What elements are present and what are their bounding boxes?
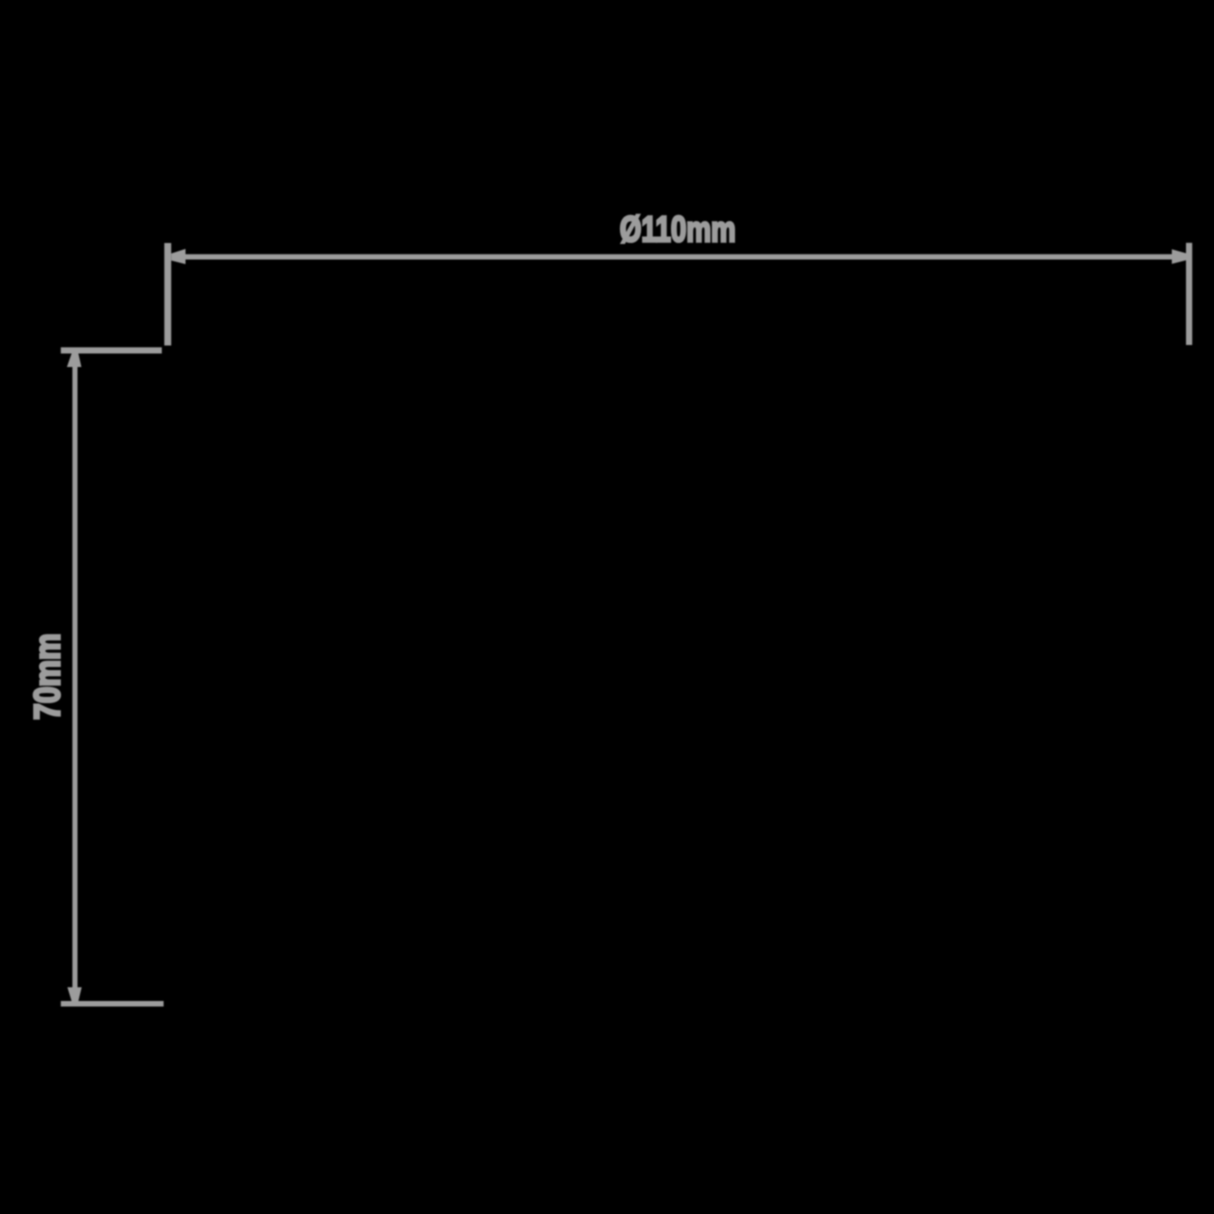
svg-text:70mm: 70mm <box>26 633 67 720</box>
svg-text:Ø110mm: Ø110mm <box>620 209 736 250</box>
